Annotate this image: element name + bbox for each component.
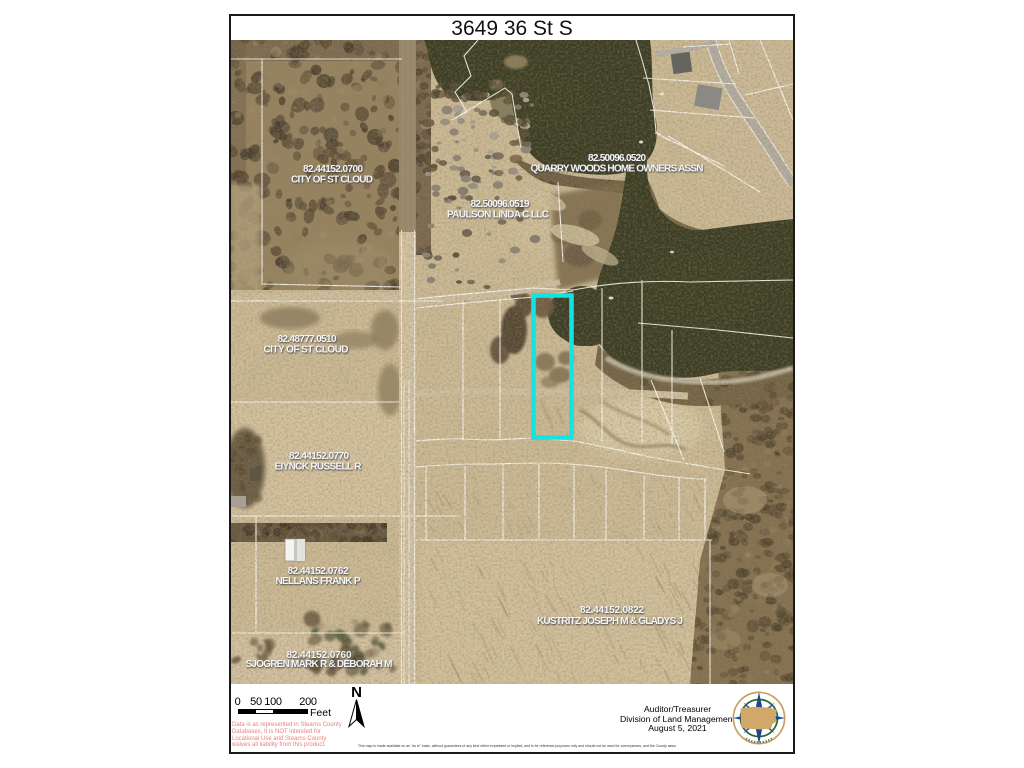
svg-text:QUARRY WOODS HOME OWNERS ASSN: QUARRY WOODS HOME OWNERS ASSN bbox=[531, 164, 704, 175]
svg-text:KUSTRITZ JOSEPH M & GLADYS J: KUSTRITZ JOSEPH M & GLADYS J bbox=[537, 616, 683, 627]
svg-text:CITY OF ST CLOUD: CITY OF ST CLOUD bbox=[264, 345, 349, 356]
svg-text:CITY OF ST CLOUD: CITY OF ST CLOUD bbox=[291, 175, 373, 186]
svg-text:82.44152.0822: 82.44152.0822 bbox=[580, 605, 644, 616]
svg-text:82.44152.0700: 82.44152.0700 bbox=[303, 164, 363, 175]
svg-text:82.48777.0510: 82.48777.0510 bbox=[278, 334, 337, 345]
svg-text:PAULSON LINDA C LLC: PAULSON LINDA C LLC bbox=[447, 210, 549, 221]
svg-text:82.50096.0520: 82.50096.0520 bbox=[588, 153, 646, 164]
svg-text:EIYNCK RUSSELL R: EIYNCK RUSSELL R bbox=[275, 462, 363, 473]
svg-text:NELLANS FRANK P: NELLANS FRANK P bbox=[276, 576, 361, 587]
svg-text:SJOGREN MARK R & DEBORAH M: SJOGREN MARK R & DEBORAH M bbox=[246, 659, 393, 670]
svg-text:82.44152.0770: 82.44152.0770 bbox=[289, 451, 349, 462]
svg-text:82.50096.0519: 82.50096.0519 bbox=[471, 199, 530, 210]
